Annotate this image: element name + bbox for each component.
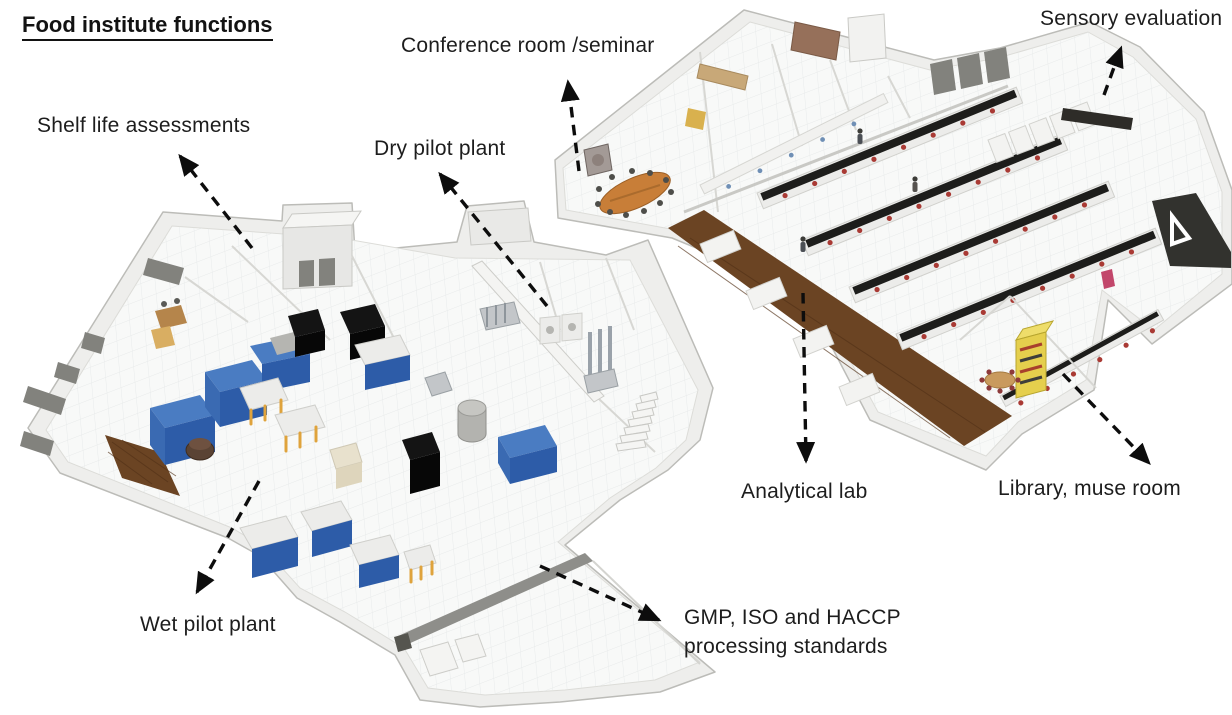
label-shelf-life-assessments: Shelf life assessments [37, 114, 250, 138]
roof-block [468, 208, 531, 245]
figure-canvas: Food institute functions Shelf life asse… [0, 0, 1232, 715]
label-dry-pilot-plant: Dry pilot plant [374, 137, 505, 161]
label-gmp-line1: GMP, ISO and HACCP [684, 603, 901, 632]
roof-block [848, 14, 886, 62]
label-library-muse-room: Library, muse room [998, 477, 1181, 501]
pilot-plant-building [20, 201, 715, 707]
label-gmp-line2: processing standards [684, 632, 901, 661]
label-conference-room-seminar: Conference room /seminar [401, 34, 654, 58]
label-sensory-evaluation: Sensory evaluation [1040, 7, 1222, 31]
label-wet-pilot-plant: Wet pilot plant [140, 613, 276, 637]
utility-tower [283, 211, 361, 289]
label-analytical-lab: Analytical lab [741, 480, 868, 504]
mixing-kettle [186, 438, 214, 460]
bench-island [793, 325, 834, 357]
arrow-library [1063, 374, 1149, 463]
floorplan-illustration [0, 0, 1232, 715]
cylinder-tank [458, 400, 486, 442]
figure-title: Food institute functions [22, 12, 273, 41]
label-gmp-iso-haccp: GMP, ISO and HACCP processing standards [684, 603, 901, 661]
